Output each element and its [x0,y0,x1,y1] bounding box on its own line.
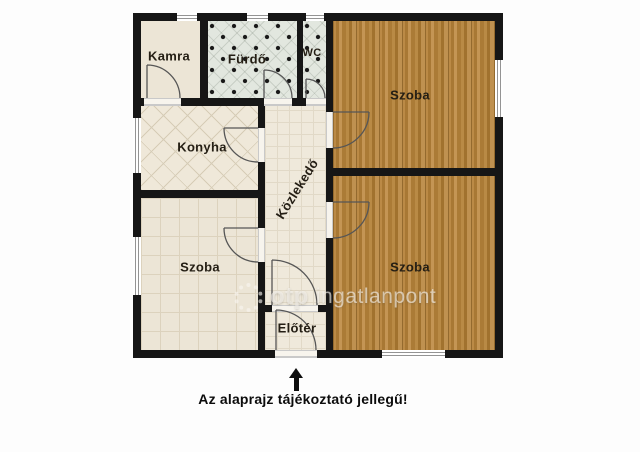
door-opening-entrance [275,350,317,358]
wall-bottom [133,350,275,358]
up-arrow-icon [289,368,303,391]
window-furdo-top [247,13,268,21]
door-opening-kamra [144,98,181,106]
caption-text: Az alaprajz tájékoztató jellegű! [198,391,407,407]
watermark-name: ingatlanpont [316,285,436,309]
room-label-furdo: Fürdő [228,52,266,67]
wall-corridor-right [326,148,333,202]
wall-under-wc [292,98,306,106]
room-label-kamra: Kamra [148,49,190,64]
floor-plan: Kamra Fürdő WC Szoba Szoba Konyha Közlek… [0,0,640,452]
window-szoba-right [495,60,503,117]
wall-left [133,295,141,358]
window-szoba-left [133,237,141,295]
watermark: otp ingatlanpont [234,281,436,313]
door-opening-szoba-tr [326,112,333,148]
watermark-brand: otp [270,283,309,311]
wall-left [133,173,141,237]
door-opening-szoba-bl [258,228,265,262]
wall-corridor-left [258,162,265,228]
room-label-konyha: Konyha [177,140,226,155]
up-arrow-head [289,368,303,378]
room-label-szoba-bottom-left: Szoba [180,260,220,275]
window-szoba-bottom [382,350,445,358]
wall-under-furdo [181,98,264,106]
wall-furdo-wc [297,21,303,98]
wall-right [495,117,503,358]
window-konyha-left [133,118,141,173]
door-opening-furdo [264,98,292,106]
room-label-szoba-top-right: Szoba [390,88,430,103]
wall-kamra-furdo [200,21,208,106]
room-label-szoba-bottom-right: Szoba [390,260,430,275]
door-opening-szoba-br [326,202,333,238]
window-kamra-top [177,13,197,21]
room-label-wc: WC [303,47,322,59]
watermark-logo-icon [234,283,263,312]
door-opening-wc [306,98,326,106]
wall-corridor-right [326,21,333,112]
door-opening-konyha [258,128,265,162]
room-label-eloter: Előtér [278,321,317,336]
wall-bottom [317,350,382,358]
wall-szoba-divider [333,168,495,176]
wall-konyha-szoba [141,190,258,198]
wall-right [495,13,503,60]
wall-left [133,13,141,118]
window-wc-top [306,13,324,21]
room-wc [303,21,326,98]
up-arrow-stem [294,378,299,391]
